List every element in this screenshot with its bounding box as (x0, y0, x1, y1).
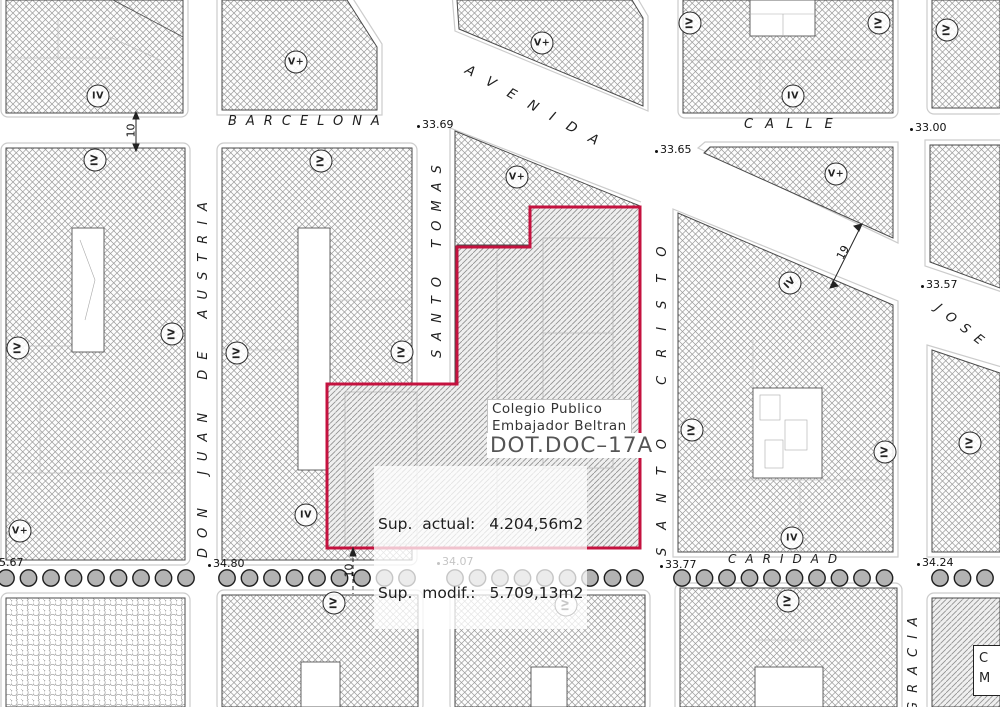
street-tree (0, 570, 14, 586)
block-plaza (6, 598, 185, 707)
city-plan-map: BARCELONAAVENIDACALLECARIDADDON JUAN DE … (0, 0, 1000, 707)
street-tree (241, 570, 257, 586)
street-tree (831, 570, 847, 586)
street-tree (764, 570, 780, 586)
street-tree (155, 570, 171, 586)
street-tree (309, 570, 325, 586)
street-tree (219, 570, 235, 586)
surface-modif-label: Sup. modif.: (378, 584, 476, 602)
street-tree (604, 570, 620, 586)
block (6, 0, 183, 113)
street-tree (932, 570, 948, 586)
street-tree (786, 570, 802, 586)
street-tree (20, 570, 36, 586)
street-tree (809, 570, 825, 586)
street-tree (88, 570, 104, 586)
street-tree (741, 570, 757, 586)
street-tree (854, 570, 870, 586)
block (930, 145, 1000, 288)
parcel-surface-box: Sup. actual:4.204,56m2 Sup. modif.:5.709… (374, 466, 587, 629)
street-tree (264, 570, 280, 586)
parcel-code: DOT.DOC–17A (487, 433, 656, 458)
parcel-name-box: Colegio Publico Embajador Beltran (487, 399, 632, 437)
street-tree (696, 570, 712, 586)
street-tree (954, 570, 970, 586)
street-tree (719, 570, 735, 586)
street-tree (674, 570, 690, 586)
street-tree (286, 570, 302, 586)
street-tree (627, 570, 643, 586)
street-tree (110, 570, 126, 586)
surface-modif-value: 5.709,13m2 (490, 584, 584, 602)
block (6, 148, 185, 560)
block (222, 0, 377, 110)
street-tree (43, 570, 59, 586)
street-tree (354, 570, 370, 586)
block (932, 350, 1000, 552)
street-tree (65, 570, 81, 586)
block (932, 0, 1000, 108)
edge-label-line1: C (979, 649, 1000, 669)
street-tree (876, 570, 892, 586)
edge-label-line2: M (979, 669, 1000, 689)
block (457, 0, 643, 106)
surface-modif-row: Sup. modif.:5.709,13m2 (378, 582, 583, 605)
block (678, 213, 893, 552)
street-tree (178, 570, 194, 586)
street-tree (331, 570, 347, 586)
edge-label-box: C M (973, 645, 1000, 696)
block (704, 147, 893, 238)
surface-actual-label: Sup. actual: (378, 515, 475, 533)
street-tree (977, 570, 993, 586)
parcel-name-line1: Colegio Publico (492, 401, 627, 418)
street-tree (133, 570, 149, 586)
surface-actual-row: Sup. actual:4.204,56m2 (378, 513, 583, 536)
surface-actual-value: 4.204,56m2 (489, 515, 583, 533)
